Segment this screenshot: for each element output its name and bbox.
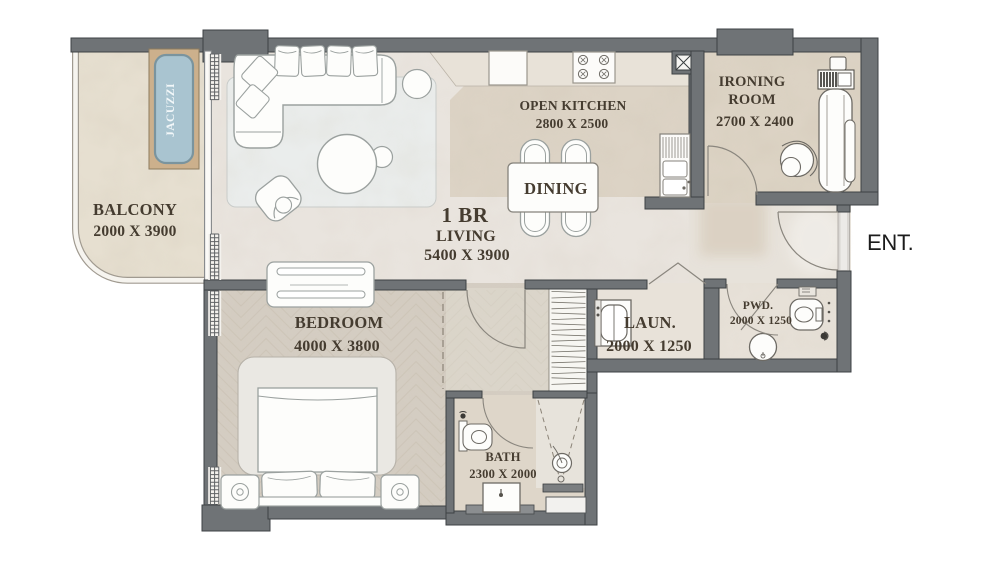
svg-text:JACUZZI: JACUZZI <box>165 83 177 137</box>
svg-text:BEDROOM: BEDROOM <box>295 313 384 332</box>
svg-text:PWD.: PWD. <box>743 300 774 312</box>
svg-text:BATH: BATH <box>485 450 520 464</box>
svg-text:LIVING: LIVING <box>436 228 496 245</box>
svg-text:1 BR: 1 BR <box>442 203 489 227</box>
svg-text:OPEN KITCHEN: OPEN KITCHEN <box>519 98 626 113</box>
svg-text:2000 X 3900: 2000 X 3900 <box>93 223 176 240</box>
svg-text:5400 X 3900: 5400 X 3900 <box>424 247 510 264</box>
svg-text:IRONING: IRONING <box>719 74 786 90</box>
svg-text:2700 X 2400: 2700 X 2400 <box>716 114 794 130</box>
svg-text:ENT.: ENT. <box>867 230 913 255</box>
svg-text:LAUN.: LAUN. <box>624 313 676 332</box>
svg-text:2000 X 1250: 2000 X 1250 <box>606 338 692 355</box>
svg-text:2800 X 2500: 2800 X 2500 <box>536 116 609 131</box>
svg-text:DINING: DINING <box>524 179 588 198</box>
svg-text:4000 X 3800: 4000 X 3800 <box>294 338 380 355</box>
svg-text:BALCONY: BALCONY <box>93 200 177 219</box>
svg-text:2300 X 2000: 2300 X 2000 <box>469 467 536 481</box>
svg-text:2000 X 1250: 2000 X 1250 <box>730 315 792 327</box>
svg-text:ROOM: ROOM <box>728 92 776 108</box>
